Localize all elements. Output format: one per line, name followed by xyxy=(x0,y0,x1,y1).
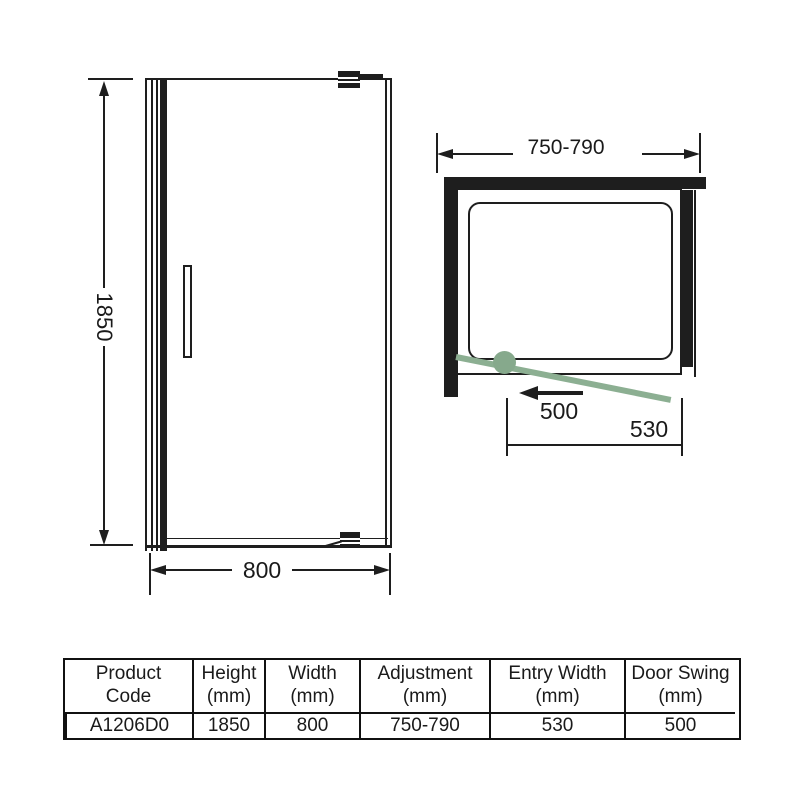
table-cell-width: 800 xyxy=(264,714,359,738)
adjustment-dim-label: 750-790 xyxy=(516,137,616,158)
cell-value: 530 xyxy=(542,715,574,737)
plan-door-panel-outer-line xyxy=(694,190,696,377)
bottom-pivot-hinge xyxy=(340,532,360,548)
wall-profile xyxy=(145,78,167,551)
door-swing-arrow-shaft xyxy=(535,391,583,395)
header-line: Product xyxy=(96,663,161,686)
height-dim-arrow-up-icon xyxy=(99,81,109,96)
height-dim-arrow-down-icon xyxy=(99,530,109,545)
entry-dim-line xyxy=(506,444,683,446)
header-line: (mm) xyxy=(290,686,334,709)
width-dim-line-right xyxy=(286,569,376,571)
door-pivot-point xyxy=(493,351,516,374)
header-line: Door Swing xyxy=(631,663,729,686)
table-cell-adjustment: 750-790 xyxy=(359,714,489,738)
entry-dim-ext-left xyxy=(506,398,508,456)
door-swing-label: 500 xyxy=(533,400,585,423)
table-header-entry-width: Entry Width (mm) xyxy=(489,660,624,714)
table-header-height: Height (mm) xyxy=(192,660,264,714)
header-line: (mm) xyxy=(403,686,447,709)
width-dim-label: 800 xyxy=(232,559,292,582)
table-cell-height: 1850 xyxy=(192,714,264,738)
header-line: (mm) xyxy=(535,686,579,709)
cell-value: 1850 xyxy=(208,715,250,737)
header-line: Adjustment xyxy=(377,663,472,686)
height-dim-bottom-tick xyxy=(90,544,133,546)
spec-table: Product Code Height (mm) Width (mm) Adju… xyxy=(63,658,741,740)
header-line: Code xyxy=(106,686,151,709)
cell-value: 500 xyxy=(665,715,697,737)
door-right-edge xyxy=(385,78,392,548)
top-pivot-bar xyxy=(358,74,383,80)
entry-width-label: 530 xyxy=(618,418,680,441)
entry-dim-ext-right xyxy=(681,398,683,456)
table-cell-product-code: A1206D0 xyxy=(65,714,192,738)
top-pivot-hinge xyxy=(338,71,360,88)
cell-value: 800 xyxy=(297,715,329,737)
header-line: (mm) xyxy=(207,686,251,709)
height-dim-label: 1850 xyxy=(91,288,117,346)
adjustment-dim-line-left xyxy=(448,153,513,155)
width-dim-arrow-right-icon xyxy=(374,565,390,575)
table-cell-entry-width: 530 xyxy=(489,714,624,738)
plan-door-panel xyxy=(680,190,693,367)
height-dim-top-tick xyxy=(88,78,133,80)
cell-value: 750-790 xyxy=(390,715,460,737)
table-header-door-swing: Door Swing (mm) xyxy=(624,660,735,714)
header-line: Height xyxy=(202,663,257,686)
header-line: (mm) xyxy=(658,686,702,709)
door-handle xyxy=(183,265,192,358)
width-dim-line-left xyxy=(160,569,235,571)
adjustment-dim-arrow-right-icon xyxy=(684,149,700,159)
shower-door-technical-drawing: 1850 800 750-790 xyxy=(0,0,800,800)
shower-tray xyxy=(468,202,673,360)
table-header-product-code: Product Code xyxy=(65,660,192,714)
table-header-width: Width (mm) xyxy=(264,660,359,714)
header-line: Entry Width xyxy=(508,663,606,686)
table-cell-door-swing: 500 xyxy=(624,714,735,738)
header-line: Width xyxy=(288,663,337,686)
cell-value: A1206D0 xyxy=(90,715,169,737)
table-header-adjustment: Adjustment (mm) xyxy=(359,660,489,714)
adjustment-dim-line-right xyxy=(642,153,687,155)
